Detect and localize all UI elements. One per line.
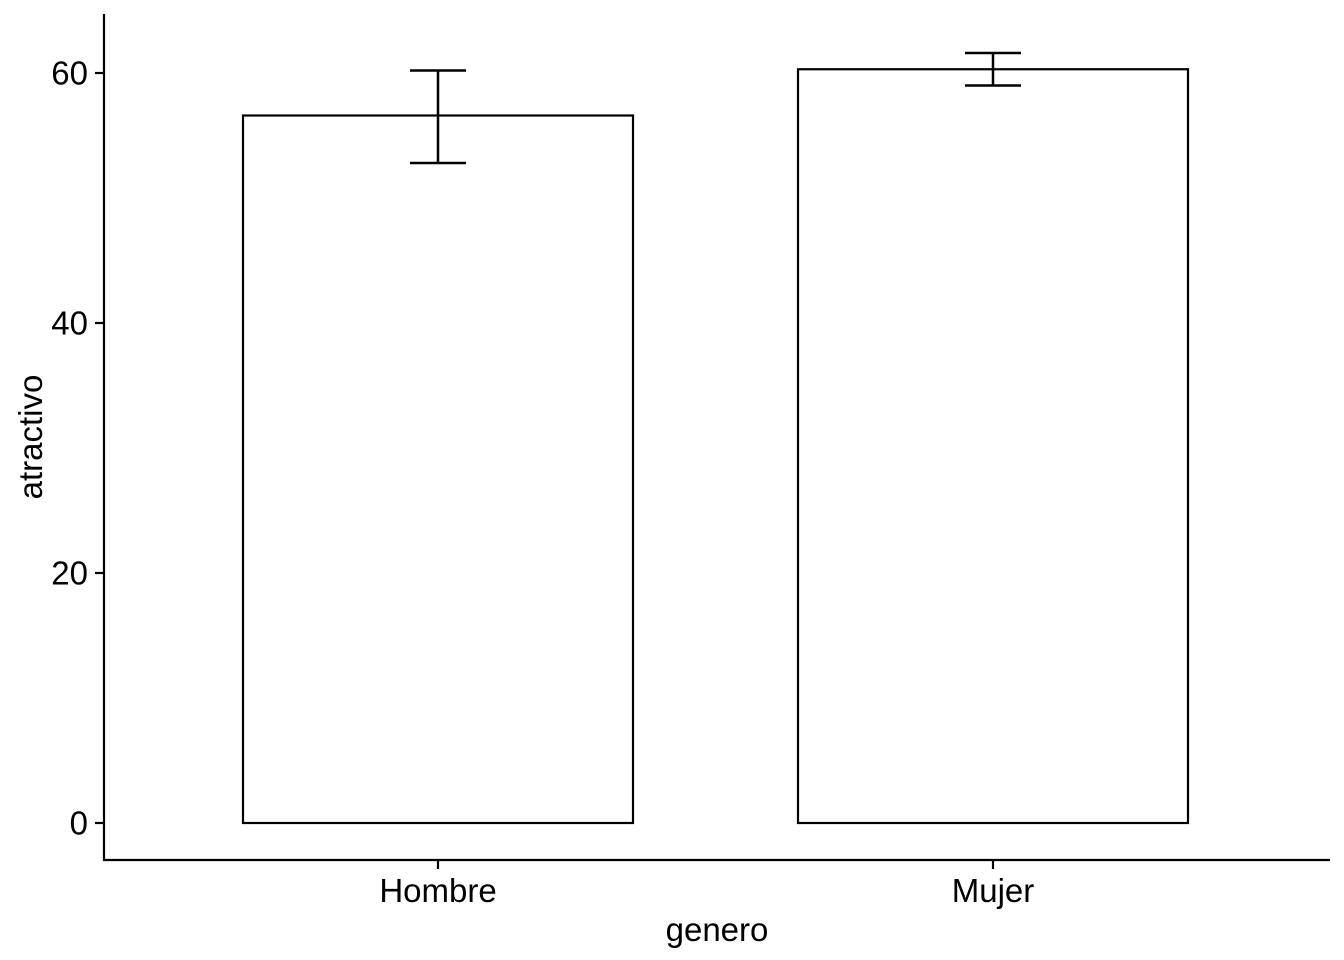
bar-chart: 0204060HombreMujer genero atractivo [0,0,1344,960]
x-axis-title: genero [666,911,769,948]
y-tick-label: 0 [70,805,88,842]
y-tick-label: 40 [51,305,88,342]
chart-canvas: 0204060HombreMujer genero atractivo [0,0,1344,960]
y-tick-label: 20 [51,555,88,592]
bar-hombre [243,116,633,824]
x-tick-label: Hombre [379,872,496,909]
bar-mujer [798,69,1188,823]
x-tick-label: Mujer [952,872,1035,909]
y-tick-label: 60 [51,55,88,92]
y-axis-title: atractivo [12,375,49,500]
